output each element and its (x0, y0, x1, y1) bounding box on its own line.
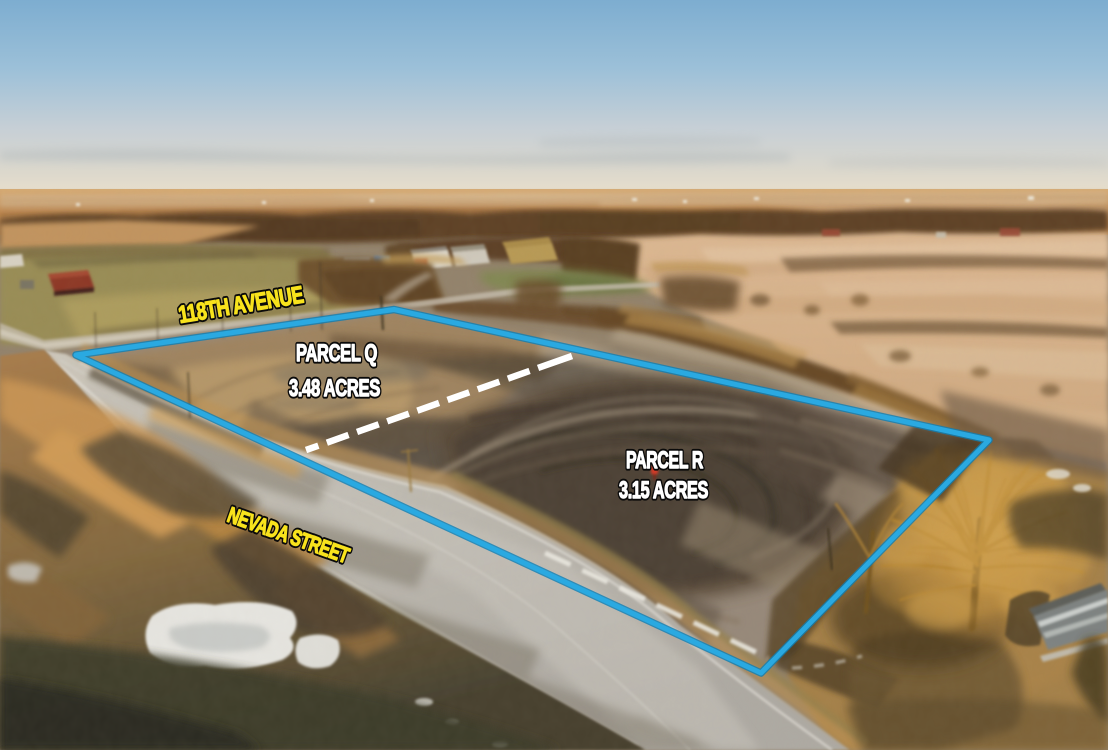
svg-text:PARCEL Q: PARCEL Q (296, 340, 377, 367)
svg-text:3.15 ACRES: 3.15 ACRES (619, 477, 708, 504)
svg-text:PARCEL R: PARCEL R (626, 447, 703, 474)
svg-text:3.48 ACRES: 3.48 ACRES (289, 375, 380, 402)
